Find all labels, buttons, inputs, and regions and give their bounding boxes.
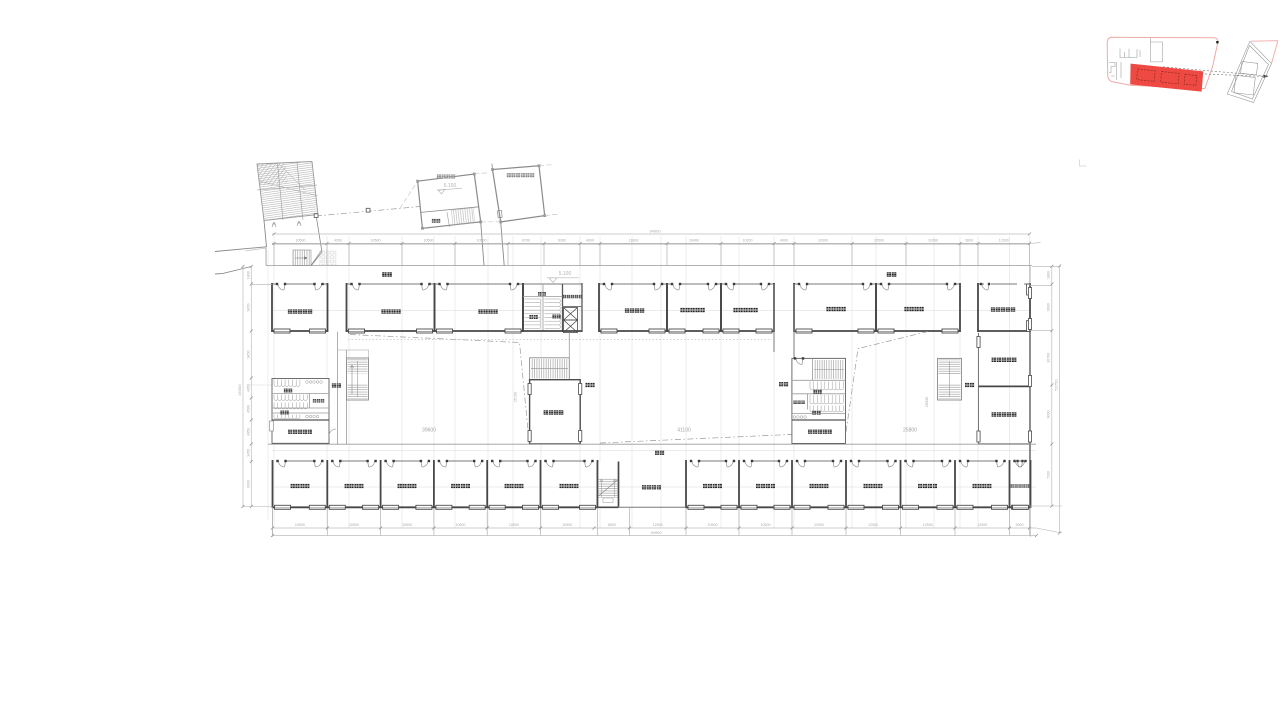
svg-text:6300: 6300 bbox=[558, 239, 566, 243]
svg-text:9000: 9000 bbox=[1047, 303, 1051, 311]
svg-text:11800: 11800 bbox=[629, 239, 639, 243]
svg-text:25800: 25800 bbox=[903, 428, 917, 434]
svg-text:10700: 10700 bbox=[1047, 353, 1051, 363]
svg-text:10500: 10500 bbox=[296, 239, 306, 243]
svg-text:10500: 10500 bbox=[295, 523, 305, 527]
svg-text:9300: 9300 bbox=[246, 480, 250, 488]
svg-text:5.100: 5.100 bbox=[559, 271, 572, 277]
svg-text:4500: 4500 bbox=[246, 405, 250, 413]
svg-text:10400: 10400 bbox=[689, 239, 699, 243]
svg-text:94900: 94900 bbox=[650, 530, 662, 535]
svg-text:10500: 10500 bbox=[456, 523, 466, 527]
svg-text:12500: 12500 bbox=[977, 523, 987, 527]
svg-text:4050: 4050 bbox=[246, 384, 250, 392]
svg-text:52750: 52750 bbox=[1054, 379, 1059, 391]
svg-text:10300: 10300 bbox=[928, 239, 938, 243]
svg-text:45300: 45300 bbox=[237, 384, 242, 396]
svg-text:9450: 9450 bbox=[246, 351, 250, 359]
svg-text:10300: 10300 bbox=[818, 239, 828, 243]
svg-text:12500: 12500 bbox=[814, 523, 824, 527]
svg-text:4000: 4000 bbox=[780, 239, 788, 243]
svg-text:10500: 10500 bbox=[874, 239, 884, 243]
svg-text:10500: 10500 bbox=[562, 523, 572, 527]
svg-text:1800: 1800 bbox=[246, 271, 250, 279]
svg-text:5.100: 5.100 bbox=[444, 183, 457, 189]
svg-text:25100: 25100 bbox=[514, 392, 518, 403]
svg-text:10500: 10500 bbox=[477, 239, 487, 243]
svg-text:4200: 4200 bbox=[334, 239, 342, 243]
svg-text:41100: 41100 bbox=[677, 428, 691, 434]
svg-text:4000: 4000 bbox=[586, 239, 594, 243]
svg-text:1800: 1800 bbox=[1047, 271, 1051, 279]
svg-text:94900: 94900 bbox=[649, 228, 661, 233]
svg-text:10200: 10200 bbox=[743, 239, 753, 243]
svg-text:6500: 6500 bbox=[608, 523, 616, 527]
svg-text:9000: 9000 bbox=[1047, 411, 1051, 419]
svg-text:3600: 3600 bbox=[965, 239, 973, 243]
svg-text:3450: 3450 bbox=[246, 449, 250, 457]
svg-text:10500: 10500 bbox=[424, 239, 434, 243]
svg-text:39600: 39600 bbox=[422, 428, 436, 434]
svg-text:10500: 10500 bbox=[708, 523, 718, 527]
svg-text:9450: 9450 bbox=[246, 304, 250, 312]
svg-text:3900: 3900 bbox=[1016, 523, 1024, 527]
svg-text:12300: 12300 bbox=[999, 239, 1009, 243]
svg-text:10500: 10500 bbox=[761, 523, 771, 527]
svg-text:7200: 7200 bbox=[1047, 471, 1051, 479]
svg-text:12500: 12500 bbox=[923, 523, 933, 527]
svg-text:25930: 25930 bbox=[925, 397, 929, 408]
svg-text:4950: 4950 bbox=[246, 428, 250, 436]
svg-text:10500: 10500 bbox=[402, 523, 412, 527]
svg-text:12500: 12500 bbox=[868, 523, 878, 527]
svg-text:12500: 12500 bbox=[653, 523, 663, 527]
svg-text:10500: 10500 bbox=[371, 239, 381, 243]
svg-text:10500: 10500 bbox=[349, 523, 359, 527]
svg-text:10500: 10500 bbox=[509, 523, 519, 527]
svg-text:6700: 6700 bbox=[522, 239, 530, 243]
